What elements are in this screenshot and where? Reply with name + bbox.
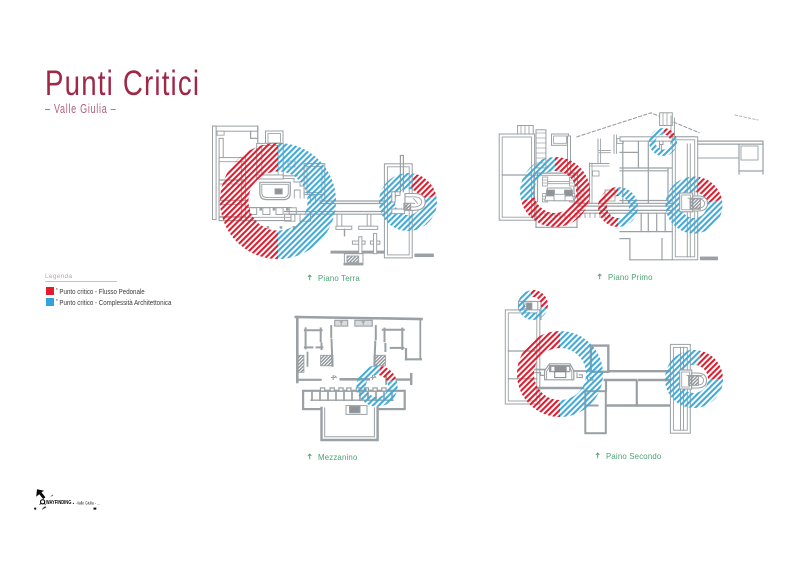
svg-text:▴: ▴: [73, 501, 75, 505]
svg-text:-Valle Giulia - ...: -Valle Giulia - ...: [76, 500, 100, 505]
svg-text:WAYFINDING: WAYFINDING: [46, 500, 72, 506]
